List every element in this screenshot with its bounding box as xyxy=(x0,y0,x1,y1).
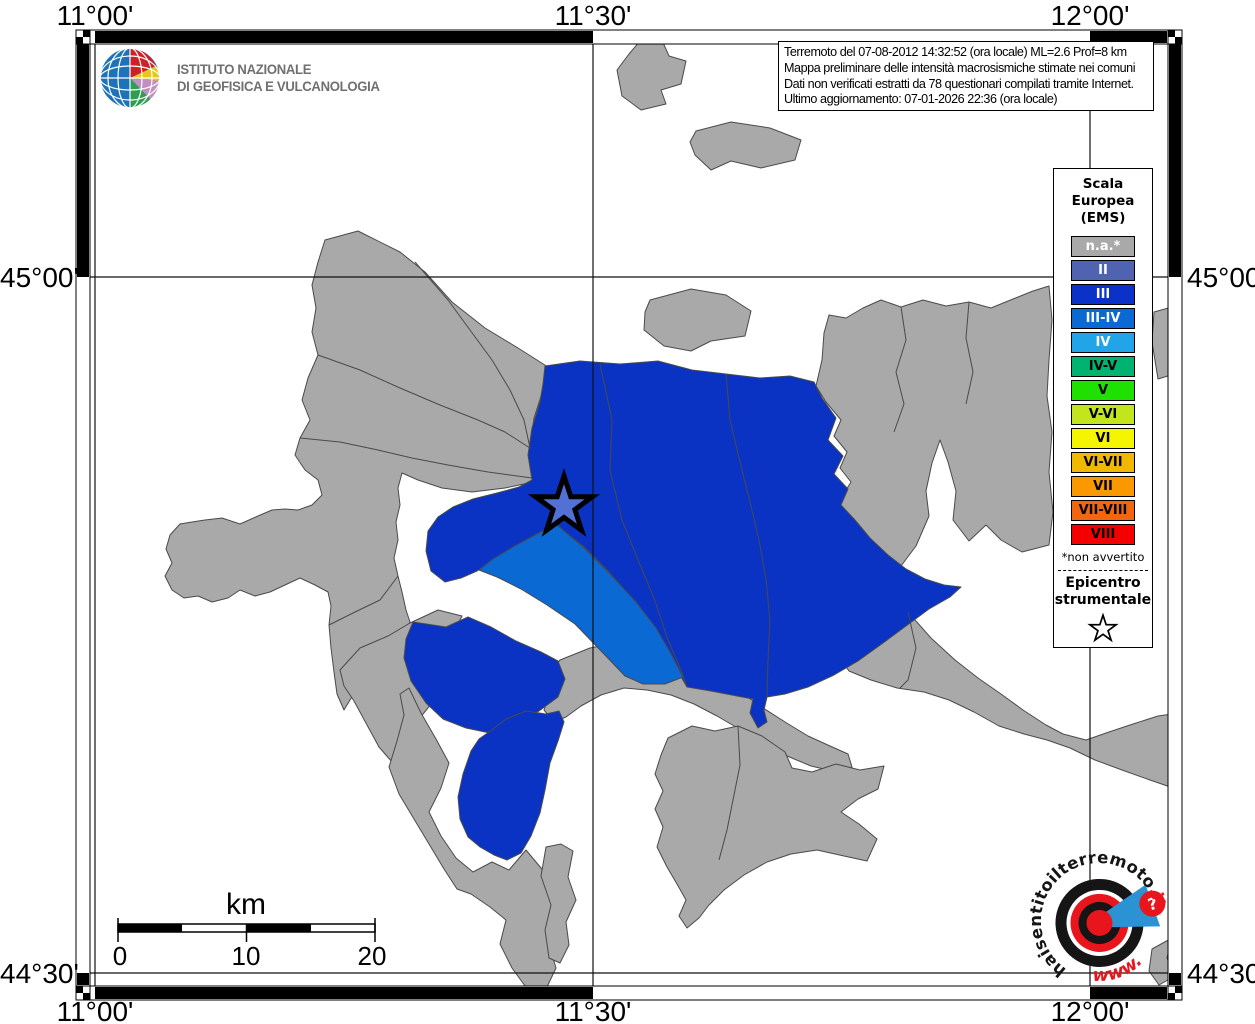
info-line-mapdesc: Mappa preliminare delle intensità macros… xyxy=(784,61,1148,77)
municipality-island-north2 xyxy=(690,122,801,170)
legend-item-vi-vii: VI-VII xyxy=(1071,452,1135,473)
lat-label-right-1: 44°30' xyxy=(1187,958,1255,990)
municipality-island-north xyxy=(617,38,686,110)
legend-epicenter-line: Epicentro xyxy=(1054,575,1152,592)
lat-label-right-0: 45°00' xyxy=(1187,262,1255,294)
info-line-data: Dati non verificati estratti da 78 quest… xyxy=(784,77,1148,93)
info-line-event: Terremoto del 07-08-2012 14:32:52 (ora l… xyxy=(784,45,1148,61)
legend-item-iii: III xyxy=(1071,284,1135,305)
municipality-south-east xyxy=(655,726,884,928)
legend-item-ii: II xyxy=(1071,260,1135,281)
lat-label-left-0: 45°00' xyxy=(0,262,71,294)
ingv-name-line1: ISTITUTO NAZIONALE xyxy=(177,61,380,79)
lon-label-bottom-0: 11°00' xyxy=(57,996,134,1024)
legend-epicenter-line: strumentale xyxy=(1054,592,1152,609)
legend-divider xyxy=(1058,570,1148,571)
ingv-globe-icon xyxy=(97,45,163,111)
legend-item-v-vi: V-VI xyxy=(1071,404,1135,425)
legend-item-iv: IV xyxy=(1071,332,1135,353)
legend-star-icon xyxy=(1086,613,1120,645)
legend-title-line: Scala xyxy=(1054,176,1152,193)
legend-item-vii: VII xyxy=(1071,476,1135,497)
legend-item-vii-viii: VII-VIII xyxy=(1071,500,1135,521)
haisentitoilterremoto-logo: ? haisentitoilterremoto.it www. xyxy=(1021,841,1181,1001)
lon-label-top-1: 11°30' xyxy=(555,0,632,32)
legend-footnote: *non avvertito xyxy=(1054,550,1152,564)
legend-item-na: n.a.* xyxy=(1071,236,1135,257)
legend-item-vi: VI xyxy=(1071,428,1135,449)
earthquake-info-box: Terremoto del 07-08-2012 14:32:52 (ora l… xyxy=(778,41,1154,111)
scale-tick-0: 0 xyxy=(113,941,127,972)
legend-item-v: V xyxy=(1071,380,1135,401)
legend-item-viii: VIII xyxy=(1071,524,1135,545)
macroseismic-map-page: 11°00' 11°30' 12°00' 11°00' 11°30' 12°00… xyxy=(0,0,1255,1024)
ems-scale-legend: Scala Europea (EMS) n.a.* II III III-IV … xyxy=(1053,168,1153,648)
scale-bar-unit: km xyxy=(226,888,266,922)
lat-label-left-1: 44°30' xyxy=(0,958,71,990)
ingv-logo: ISTITUTO NAZIONALE DI GEOFISICA E VULCAN… xyxy=(97,45,386,111)
scale-tick-20: 20 xyxy=(358,941,387,972)
lon-label-top-2: 12°00' xyxy=(1051,0,1130,32)
legend-chips: n.a.* II III III-IV IV IV-V V V-VI VI VI… xyxy=(1054,236,1152,545)
lon-label-bottom-1: 11°30' xyxy=(555,996,632,1024)
ingv-name-line2: DI GEOFISICA E VULCANOLOGIA xyxy=(177,78,380,96)
legend-title-line: Europea xyxy=(1054,193,1152,210)
legend-item-iv-v: IV-V xyxy=(1071,356,1135,377)
municipality-intensity-iii-sw2 xyxy=(458,711,564,860)
legend-title-line: (EMS) xyxy=(1054,210,1152,227)
legend-title: Scala Europea (EMS) xyxy=(1054,176,1152,227)
info-line-updated: Ultimo aggiornamento: 07-01-2026 22:36 (… xyxy=(784,92,1148,108)
municipality-island-center xyxy=(644,289,751,351)
lon-label-top-0: 11°00' xyxy=(57,0,134,32)
legend-item-iii-iv: III-IV xyxy=(1071,308,1135,329)
scale-tick-10: 10 xyxy=(232,941,261,972)
legend-epicenter-label: Epicentro strumentale xyxy=(1054,575,1152,609)
